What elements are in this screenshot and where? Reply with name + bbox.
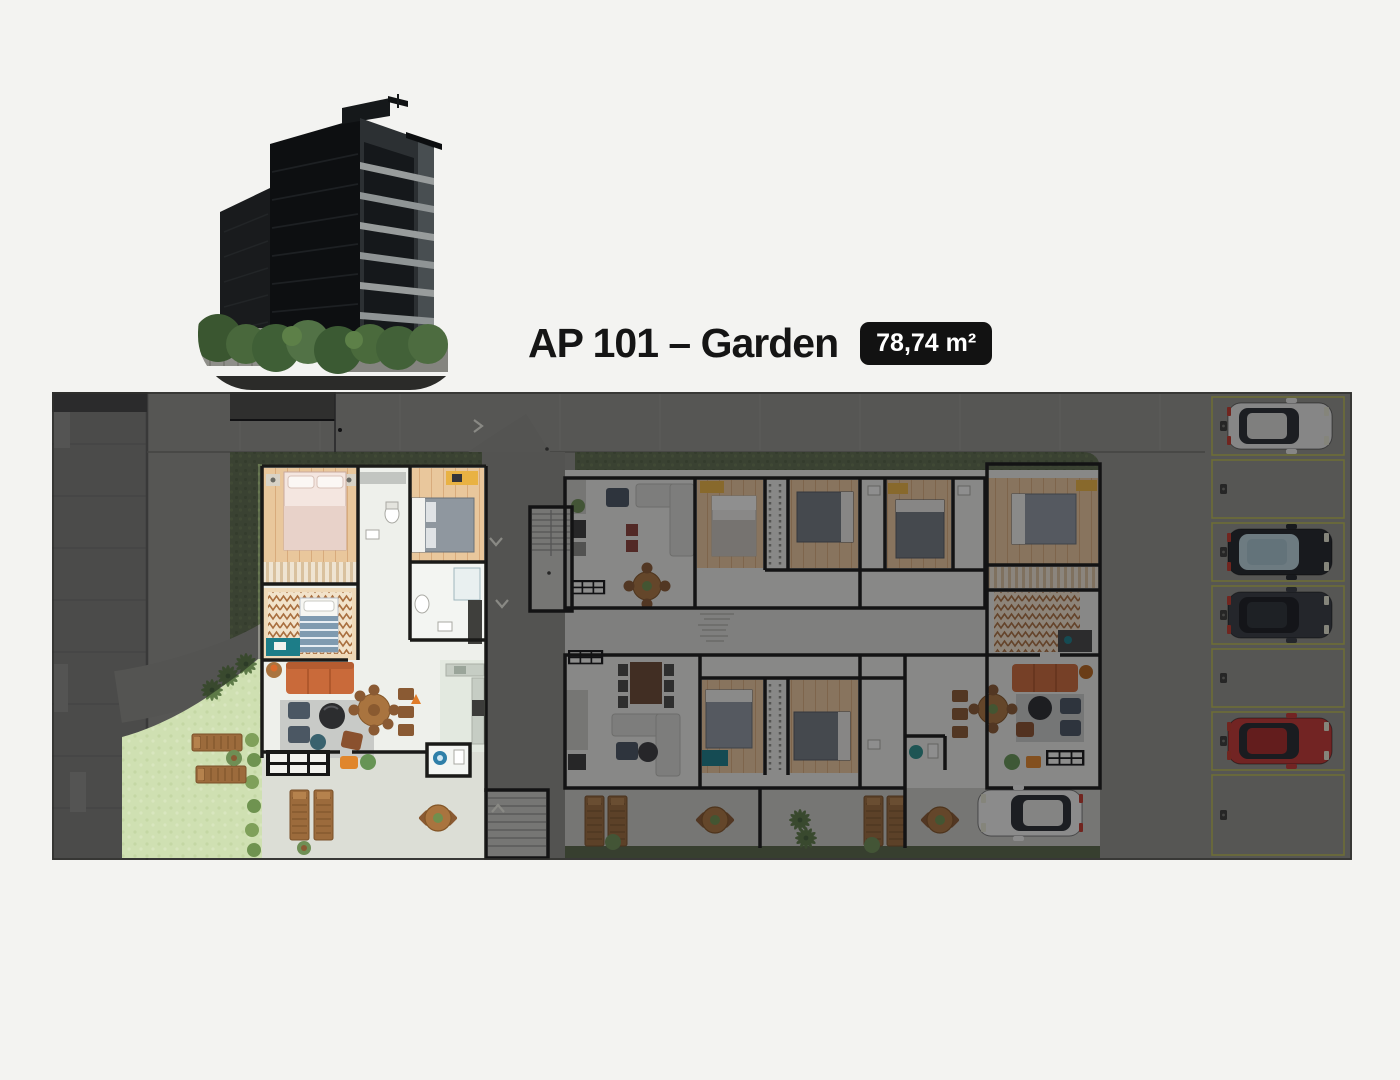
floor-plan [52, 392, 1352, 860]
building-exterior-render [192, 92, 470, 394]
building-structure [220, 94, 442, 352]
site-plan-svg [52, 392, 1352, 860]
area-badge: 78,74 m² [860, 322, 992, 365]
plan-header: AP 101 – Garden 78,74 m² [528, 320, 992, 367]
dim-overlay [52, 392, 1352, 860]
building-photo [192, 92, 470, 394]
page: AP 101 – Garden 78,74 m² [0, 0, 1400, 1080]
page-title: AP 101 – Garden [528, 320, 838, 367]
